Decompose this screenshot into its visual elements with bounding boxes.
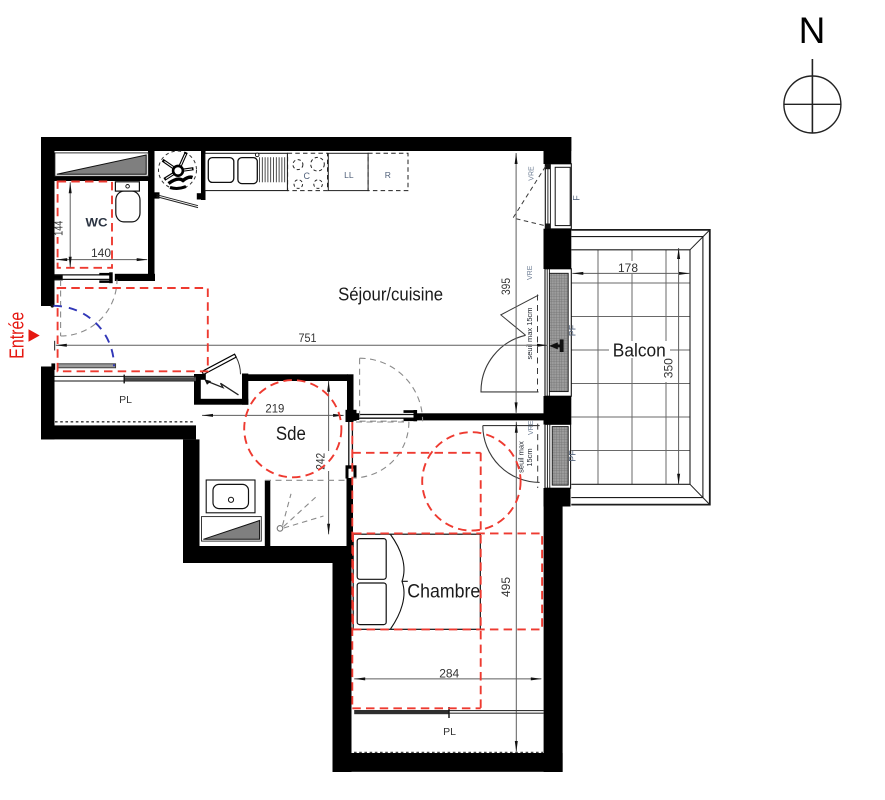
svg-text:PL: PL [119,394,132,406]
svg-text:395: 395 [499,278,513,295]
svg-text:VRE: VRE [527,265,534,280]
svg-text:Sde: Sde [276,424,306,445]
svg-text:PL: PL [443,726,456,738]
svg-text:Entrée: Entrée [7,312,29,359]
svg-text:144: 144 [52,221,66,236]
svg-text:VRE: VRE [528,420,535,435]
svg-text:WC: WC [86,218,108,230]
svg-text:242: 242 [313,453,327,470]
svg-text:C: C [304,171,311,181]
svg-text:15cm: 15cm [525,448,534,466]
svg-text:495: 495 [499,577,513,597]
svg-text:R: R [385,170,391,180]
svg-text:LL: LL [344,170,354,180]
svg-text:178: 178 [618,261,638,275]
svg-text:seuil max 15cm: seuil max 15cm [525,307,534,359]
svg-text:PF: PF [568,450,578,462]
svg-text:751: 751 [299,331,317,345]
svg-text:F: F [572,195,582,201]
svg-text:140: 140 [91,246,111,260]
svg-text:Séjour/cuisine: Séjour/cuisine [338,284,443,305]
svg-text:350: 350 [661,358,675,378]
svg-text:VRE: VRE [529,166,536,181]
svg-text:N: N [799,10,826,51]
svg-text:219: 219 [265,402,284,416]
svg-text:Chambre: Chambre [407,581,480,603]
svg-text:PF: PF [568,324,578,336]
svg-text:Balcon: Balcon [613,341,666,361]
svg-text:284: 284 [439,666,459,680]
